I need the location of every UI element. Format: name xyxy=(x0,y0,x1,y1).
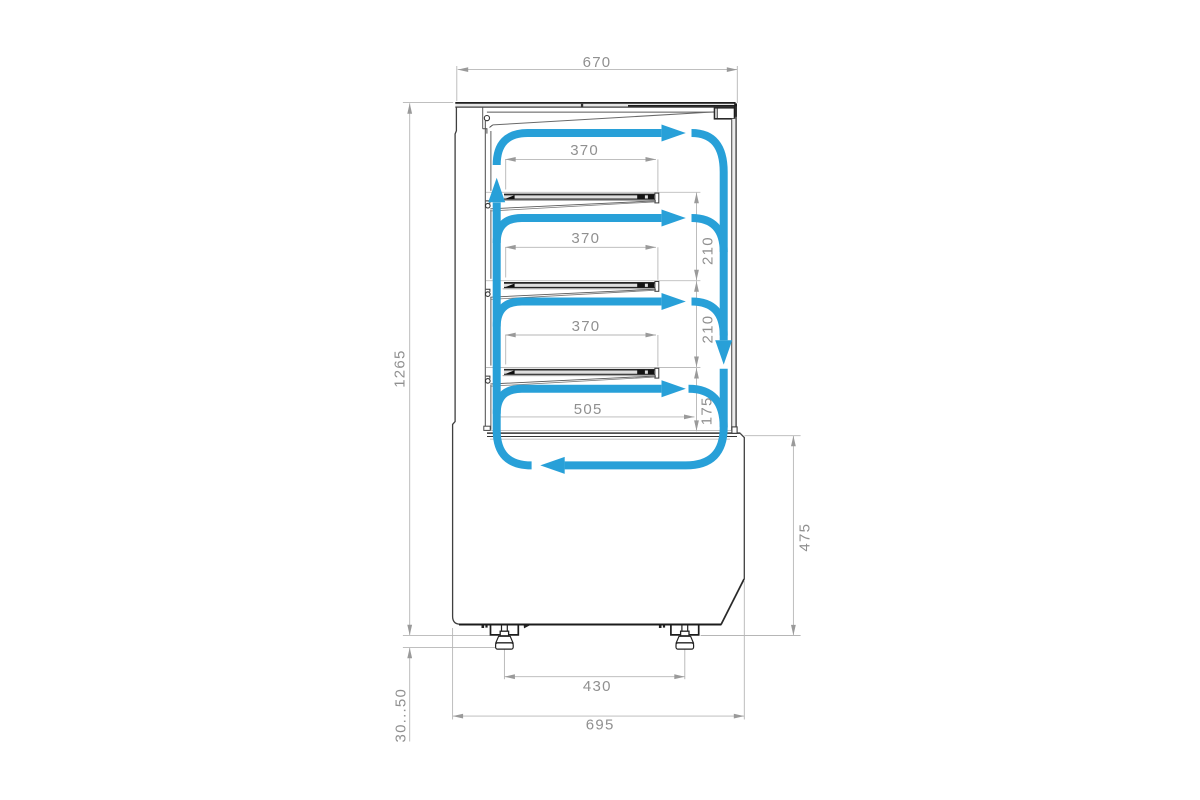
svg-text:370: 370 xyxy=(572,318,601,335)
svg-text:210: 210 xyxy=(699,236,716,265)
svg-text:30...50: 30...50 xyxy=(393,688,410,743)
svg-text:370: 370 xyxy=(570,142,599,159)
svg-text:670: 670 xyxy=(583,54,612,71)
svg-text:430: 430 xyxy=(583,678,612,695)
svg-text:210: 210 xyxy=(699,315,716,344)
svg-text:475: 475 xyxy=(796,523,813,552)
svg-text:1265: 1265 xyxy=(392,349,409,387)
svg-text:695: 695 xyxy=(586,717,615,734)
svg-text:505: 505 xyxy=(574,401,603,418)
svg-text:370: 370 xyxy=(571,230,600,247)
